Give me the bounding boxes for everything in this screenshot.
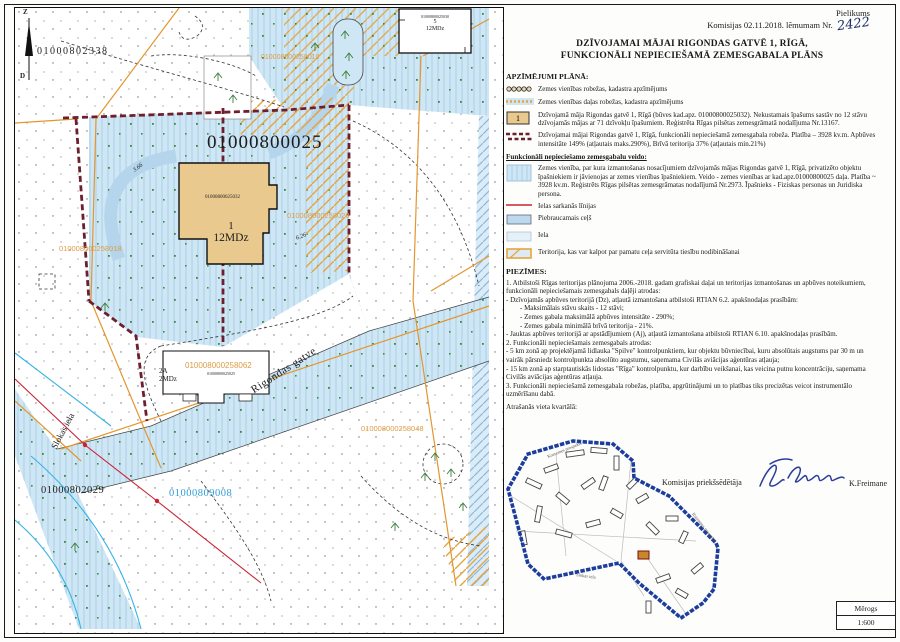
scale-label: Mērogs — [837, 602, 895, 616]
title-line-1: DZĪVOJAMAI MĀJAI RIGONDAS GATVĒ 1, RĪGĀ, — [506, 38, 878, 50]
servitude-symbol — [506, 248, 538, 262]
note-line: - 15 km zonā ap starptautiskās lidostas … — [506, 365, 878, 382]
house-symbol-number: 1 — [516, 114, 520, 123]
legend: APZĪMĒJUMI PLĀNĀ: Zemes vienības robežas… — [506, 73, 878, 412]
location-heading: Atrašanās vieta kvartālā: — [506, 403, 878, 412]
land-unit-symbol — [506, 164, 538, 198]
inset-subject-building — [638, 551, 649, 559]
legend-text: Dzīvojamā māja Rigondas gatvē 1, Rīgā (b… — [538, 111, 878, 128]
land-part-label-8018: 010008000258018 — [59, 244, 122, 253]
land-part-label-8062: 010008000258062 — [185, 361, 252, 370]
annex-label: Pielikums — [506, 8, 870, 19]
note-line: - Maksimālais stāvu skaits - 12 stāvi; — [506, 304, 878, 313]
location-inset-map: Kurzemes prospekts Kurzemes prospekts Sl… — [496, 436, 746, 636]
parcel-label-nw: 01000802338 — [37, 46, 109, 57]
decision-text: Komisijas 02.11.2018. lēmumam Nr. — [707, 20, 833, 30]
inset-buildings — [520, 447, 704, 613]
legend-text: Zemes vienības daļas robežas, kadastra a… — [538, 98, 878, 108]
legend-text: Teritorija, kas var kalpot par pamatu ce… — [538, 248, 878, 262]
building-1-labels: 1 12MDz — [201, 220, 261, 245]
notes-heading: PIEZĪMES: — [506, 268, 878, 277]
building-5-type: 12MDz — [399, 26, 471, 33]
signature-icon — [756, 456, 851, 498]
note-line: 1. Atbilstoši Rīgas teritorijas plānojum… — [506, 279, 878, 296]
driveway-symbol — [506, 214, 538, 228]
building-2a-cadastre: 01000800025025 — [207, 371, 235, 376]
street-parcel-label: 01000809008 — [169, 488, 232, 499]
legend-row-servitude: Teritorija, kas var kalpot par pamatu ce… — [506, 248, 878, 262]
legend-row-house: 1 Dzīvojamā māja Rigondas gatvē 1, Rīgā … — [506, 111, 878, 128]
land-part-label-8048: 010008000258048 — [361, 424, 424, 433]
title-line-2: FUNKCIONĀLI NEPIECIEŠAMĀ ZEMESGABALA PLĀ… — [506, 50, 878, 62]
signature-name: K.Freimane — [849, 479, 887, 488]
decision-line: Komisijas 02.11.2018. lēmumam Nr. 2422 — [506, 19, 870, 31]
house-symbol: 1 — [506, 111, 538, 128]
building-2a-type: 2MDz — [159, 375, 177, 383]
building-1-type: 12MDz — [201, 232, 261, 245]
scale-value: 1:600 — [837, 616, 895, 629]
building-2a-number: 2A — [159, 367, 177, 375]
parcel-label-main: 01000800025 — [207, 132, 323, 154]
inset-street-label: Kurzemes prospekts — [691, 512, 718, 544]
legend-row-street: Iela — [506, 231, 878, 245]
land-part-label-8010: 010008000258010 — [261, 54, 319, 61]
building-1-number: 1 — [201, 220, 261, 232]
note-line: - Zemes gabala minimālā brīvā teritorija… — [506, 322, 878, 331]
parcel-label-sw: 01000802029 — [41, 485, 104, 496]
legend-row-functional-boundary: Dzīvojamai mājai Rigondas gatvē 1, Rīgā,… — [506, 131, 878, 148]
note-line: 3. Funkcionāli nepieciešamā zemesgabala … — [506, 382, 878, 399]
land-part-label-8028: 010008000258028 — [287, 211, 350, 220]
note-line: - Jauktas apbūves teritorijā ar apstādīj… — [506, 330, 878, 339]
legend-row-land-unit: Zemes vienība, par kura izmantošanas nos… — [506, 164, 878, 198]
legend-text: Piebraucamais ceļš — [538, 214, 878, 228]
legend-row-part-boundary: Zemes vienības daļas robežas, kadastra a… — [506, 98, 878, 108]
building-5-labels: 01000800025030 5 12MDz — [399, 14, 471, 33]
inset-street-label: Slokas iela — [576, 572, 596, 580]
legend-text: Iela — [538, 231, 878, 245]
building-2a-labels: 2A 2MDz — [159, 367, 177, 383]
red-line-symbol — [506, 202, 538, 211]
header-block: Pielikums Komisijas 02.11.2018. lēmumam … — [506, 8, 878, 31]
legend-heading: APZĪMĒJUMI PLĀNĀ: — [506, 73, 878, 82]
plan-sheet: { "header": { "annex": "Pielikums", "dec… — [0, 0, 900, 642]
inset-quarter-boundary — [508, 441, 718, 618]
legend-text: Ielas sarkanās līnijas — [538, 202, 878, 211]
street-symbol — [506, 231, 538, 245]
north-label-n: Z — [23, 8, 28, 16]
legend-subheading: Funkcionāli nepieciešamo zemesgabalu vei… — [506, 153, 878, 162]
map-drawing — [15, 8, 503, 633]
note-line: - Zemes gabala maksimālā apbūves intensi… — [506, 313, 878, 322]
decision-number-handwritten: 2422 — [836, 17, 870, 32]
text-panel: Pielikums Komisijas 02.11.2018. lēmumam … — [506, 8, 878, 412]
legend-text: Zemes vienība, par kura izmantošanas nos… — [538, 164, 878, 198]
legend-row-red-lines: Ielas sarkanās līnijas — [506, 202, 878, 211]
note-line: 2. Funkcionāli nepieciešamais zemesgabal… — [506, 339, 878, 348]
note-line: - Dzīvojamās apbūves teritorijā (Dz), at… — [506, 296, 878, 305]
page-title: DZĪVOJAMAI MĀJAI RIGONDAS GATVĒ 1, RĪGĀ,… — [506, 38, 878, 62]
legend-text: Zemes vienības robežas, kadastra apzīmēj… — [538, 85, 878, 95]
legend-row-driveway: Piebraucamais ceļš — [506, 214, 878, 228]
building-1-cadastre: 01000800025032 — [205, 195, 240, 200]
legend-row-unit-boundary: Zemes vienības robežas, kadastra apzīmēj… — [506, 85, 878, 95]
functional-boundary-symbol — [506, 131, 538, 148]
building-5-number: 5 — [399, 19, 471, 26]
part-boundary-symbol — [506, 98, 538, 108]
unit-boundary-symbol — [506, 85, 538, 95]
north-label-s: D — [20, 72, 25, 80]
scale-box: Mērogs 1:600 — [836, 601, 896, 630]
legend-text: Dzīvojamai mājai Rigondas gatvē 1, Rīgā,… — [538, 131, 878, 148]
note-line: - 5 km zonā ap projektējamā lidlauka "Sp… — [506, 347, 878, 364]
site-plan-map: Z D 01000802338 010008000258010 01000800… — [14, 7, 504, 634]
